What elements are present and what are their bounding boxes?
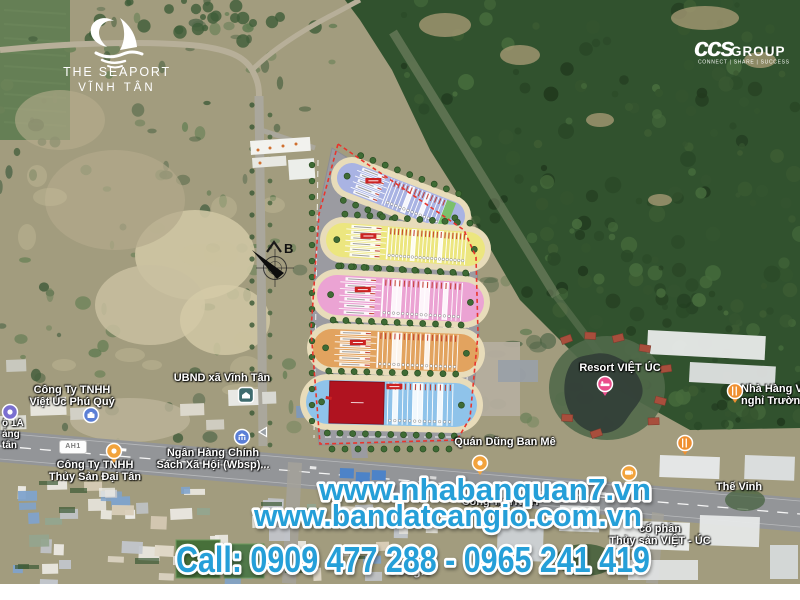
poi-briefcase-briefcase-icon[interactable] [82, 406, 100, 428]
google-watermark: Google [388, 564, 432, 578]
promo-image: B ộ 1AảngtânCông Ty TNHHViệt Úc Phú QuýU… [0, 0, 800, 600]
bottom-white-strip [0, 584, 800, 600]
road-badge-ah1: AH1 [59, 440, 87, 454]
satellite-map[interactable]: B [0, 0, 800, 600]
poi-arrow-arrow-left-icon[interactable] [253, 423, 271, 445]
poi-cafe-cafe-icon[interactable] [620, 464, 638, 486]
poi-bank-bank-icon[interactable] [233, 428, 251, 450]
poi-government-government-icon[interactable] [237, 386, 255, 408]
poi-restaurant-1-restaurant-icon[interactable] [726, 382, 744, 404]
poi-pin-ban-me-pin-icon[interactable] [471, 454, 489, 476]
poi-transit-stop-dot-icon[interactable] [1, 403, 19, 425]
poi-restaurant-2-restaurant-icon[interactable] [676, 434, 694, 456]
compass-label: B [284, 241, 293, 256]
poi-pin-dai-tan-pin-icon[interactable] [105, 442, 123, 464]
poi-hotel-hotel-icon[interactable] [596, 375, 614, 397]
